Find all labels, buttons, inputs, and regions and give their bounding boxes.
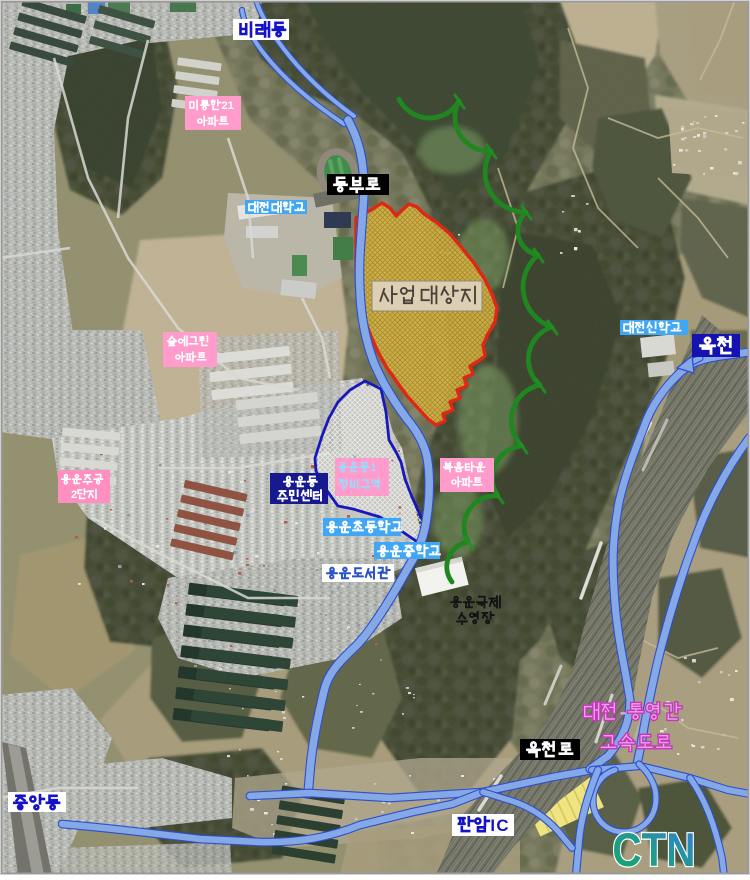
svg-text:1: 1	[228, 100, 234, 112]
svg-text:1: 1	[370, 462, 376, 474]
svg-text:C: C	[496, 816, 508, 835]
svg-text:I: I	[490, 816, 495, 835]
svg-text:CTN: CTN	[612, 824, 695, 875]
svg-text:-: -	[620, 703, 626, 724]
svg-text:2: 2	[71, 489, 77, 501]
